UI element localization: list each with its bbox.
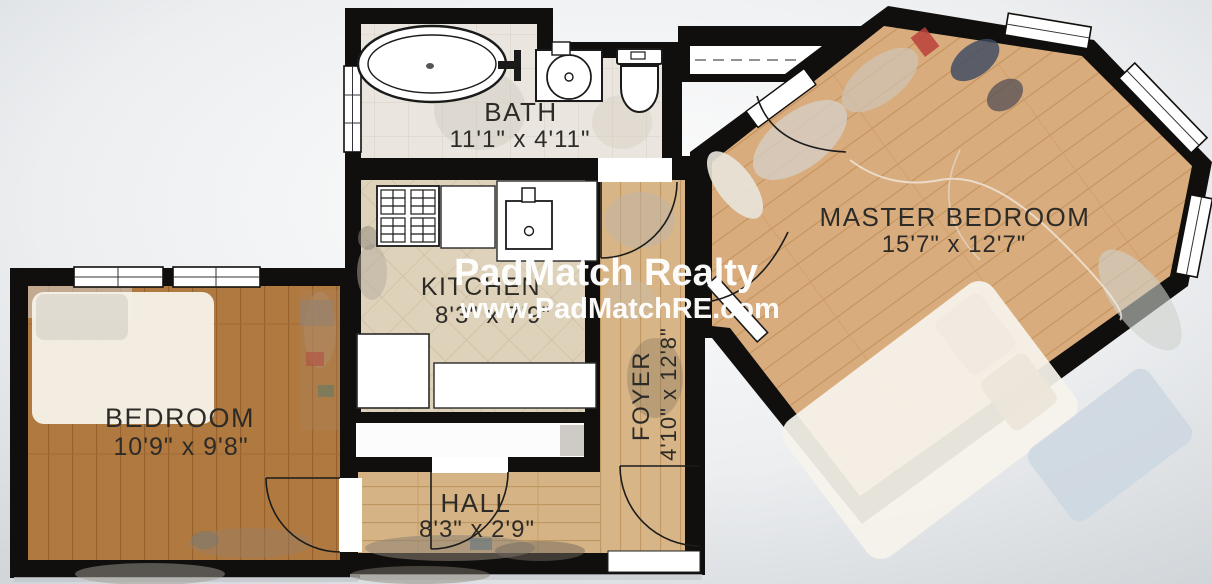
kitchen-island-counter bbox=[434, 363, 596, 408]
watermark-url: www.PadMatchRE.com bbox=[459, 293, 780, 325]
master-bedroom-dims: 15'7" x 12'7" bbox=[882, 231, 1027, 258]
entry-door-gap bbox=[608, 551, 700, 572]
master-bedroom-label: MASTER BEDROOM bbox=[820, 202, 1091, 232]
bath-window bbox=[344, 66, 361, 152]
foyer-label: FOYER bbox=[628, 351, 655, 441]
bath-label: BATH bbox=[484, 97, 557, 127]
floor-plan-canvas: BATH 11'1" x 4'11" KITCHEN 8'3" x 7'9" M… bbox=[0, 0, 1212, 584]
watermark-brand: PadMatch Realty bbox=[454, 252, 758, 294]
stove bbox=[377, 186, 439, 246]
kitchen-counter bbox=[441, 186, 495, 248]
floor-plan: BATH 11'1" x 4'11" KITCHEN 8'3" x 7'9" M… bbox=[0, 0, 1212, 584]
bedroom-label: BEDROOM bbox=[105, 403, 255, 433]
hall-dims: 8'3" x 2'9" bbox=[419, 516, 535, 543]
bedroom-window-1 bbox=[74, 267, 163, 287]
foyer-dims: 4'10" x 12'8" bbox=[656, 327, 681, 461]
bedroom-window-2 bbox=[173, 267, 260, 287]
bedroom-dims: 10'9" x 9'8" bbox=[113, 433, 248, 461]
tub-faucet-icon bbox=[514, 50, 521, 81]
bath-dims: 11'1" x 4'11" bbox=[449, 126, 590, 153]
kitchen-sink bbox=[497, 181, 597, 261]
bath-sink bbox=[536, 42, 602, 101]
watermark: PadMatch Realty www.PadMatchRE.com bbox=[454, 252, 780, 325]
toilet bbox=[617, 49, 662, 112]
kitchen-lower-counter-strip bbox=[356, 423, 584, 457]
hall-label: HALL bbox=[440, 488, 511, 518]
fridge bbox=[357, 334, 429, 408]
